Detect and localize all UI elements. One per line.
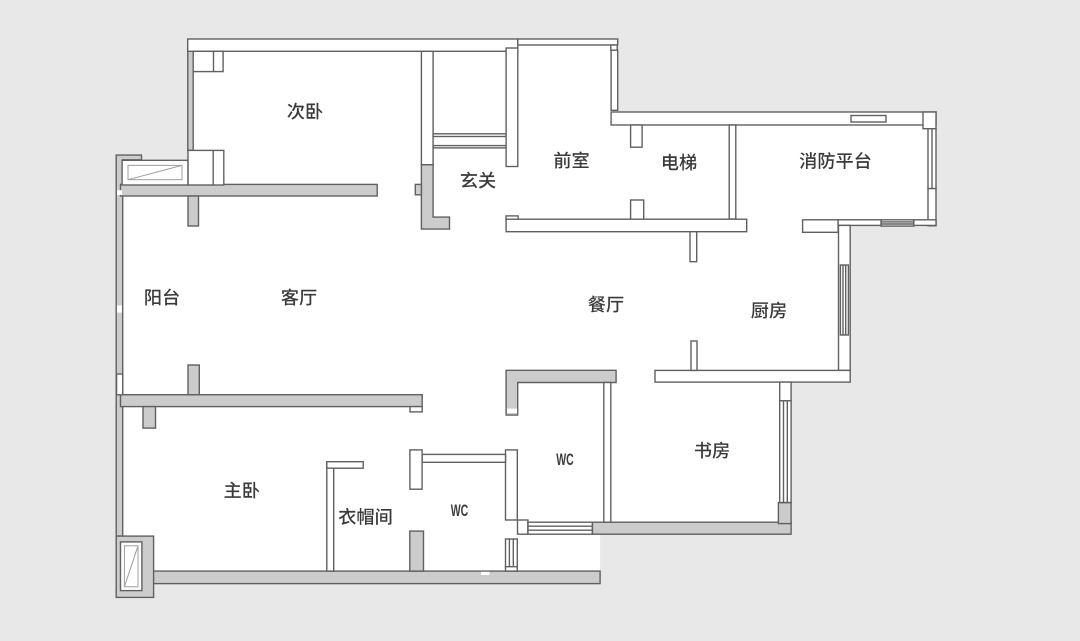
svg-text:WC: WC bbox=[556, 450, 574, 469]
svg-text:WC: WC bbox=[451, 501, 469, 520]
